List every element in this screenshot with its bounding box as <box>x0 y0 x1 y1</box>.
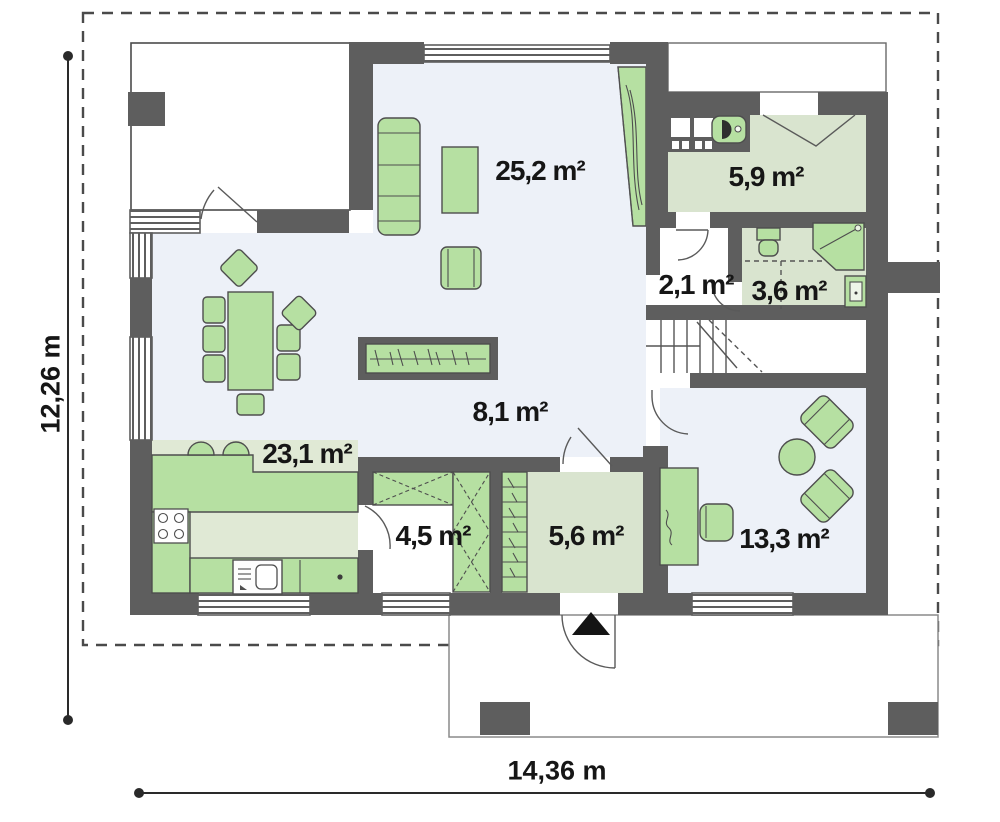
window-kitchen <box>198 593 310 615</box>
terrace-pillar <box>480 702 530 735</box>
area-label-bathroom: 3,6 m² <box>752 275 827 307</box>
utility-fixtures <box>666 114 750 152</box>
dryer <box>694 118 713 137</box>
stove <box>154 509 188 543</box>
window-top <box>424 45 610 62</box>
dining-table <box>228 292 273 390</box>
floor-plan-canvas: 25,2 m² 5,9 m² 2,1 m² 3,6 m² 8,1 m² 23,1… <box>0 0 1000 822</box>
sofa <box>378 118 420 235</box>
faucet-dot <box>337 574 342 579</box>
cabinet-x <box>373 472 453 505</box>
chair <box>203 297 225 323</box>
terrace-pillar <box>888 702 938 735</box>
area-label-wardrobe: 4,5 m² <box>396 520 471 552</box>
terrace <box>449 615 938 737</box>
window-corner-h <box>130 210 200 233</box>
chair <box>237 394 264 415</box>
armchair <box>441 247 481 289</box>
garage-area <box>128 43 350 222</box>
round-table <box>779 439 815 475</box>
desk <box>660 468 698 565</box>
coffee-table <box>442 147 478 213</box>
area-label-hall: 8,1 m² <box>473 396 548 428</box>
area-label-utility: 5,9 m² <box>729 161 804 193</box>
width-dimension-label: 14,36 m <box>507 756 606 787</box>
kitchen-sink <box>233 560 282 594</box>
area-label-room: 13,3 m² <box>739 523 829 555</box>
corridor-door <box>676 230 708 260</box>
porch-outline <box>668 43 886 92</box>
area-label-living-room: 25,2 m² <box>495 155 585 187</box>
entry-closet <box>502 472 527 592</box>
desk-chair <box>700 504 733 541</box>
staircase <box>646 320 762 373</box>
area-label-corridor: 2,1 m² <box>659 269 734 301</box>
chair <box>277 354 300 380</box>
utility-sink <box>712 116 746 143</box>
chair <box>203 326 225 352</box>
area-label-kitchen: 23,1 m² <box>262 438 352 470</box>
tv-sideboard <box>358 337 498 380</box>
area-label-entry: 5,6 m² <box>549 520 624 552</box>
toilet <box>757 228 780 256</box>
washbasin <box>845 276 866 307</box>
window-corner-v <box>130 233 152 278</box>
height-dimension-label: 12,26 m <box>36 334 67 433</box>
chimney-block <box>128 92 165 126</box>
stair-direction-line <box>697 322 737 368</box>
window-room <box>692 593 793 615</box>
washer <box>671 118 690 137</box>
chair <box>203 355 225 382</box>
window-wardrobe <box>382 593 450 615</box>
window-left <box>130 337 152 440</box>
wardrobe-door <box>365 506 390 549</box>
